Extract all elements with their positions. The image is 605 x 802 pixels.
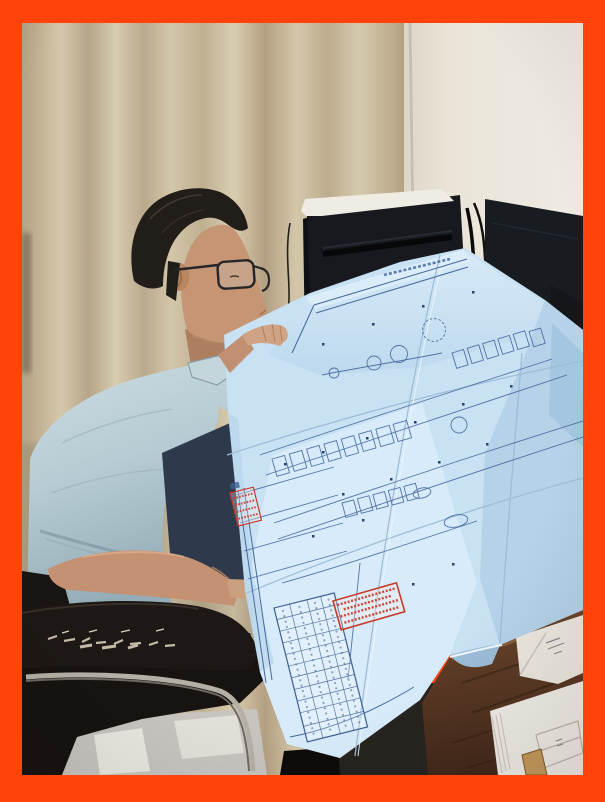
photograph xyxy=(22,23,583,775)
photo-vignette xyxy=(22,23,583,775)
photo-frame xyxy=(0,0,605,802)
